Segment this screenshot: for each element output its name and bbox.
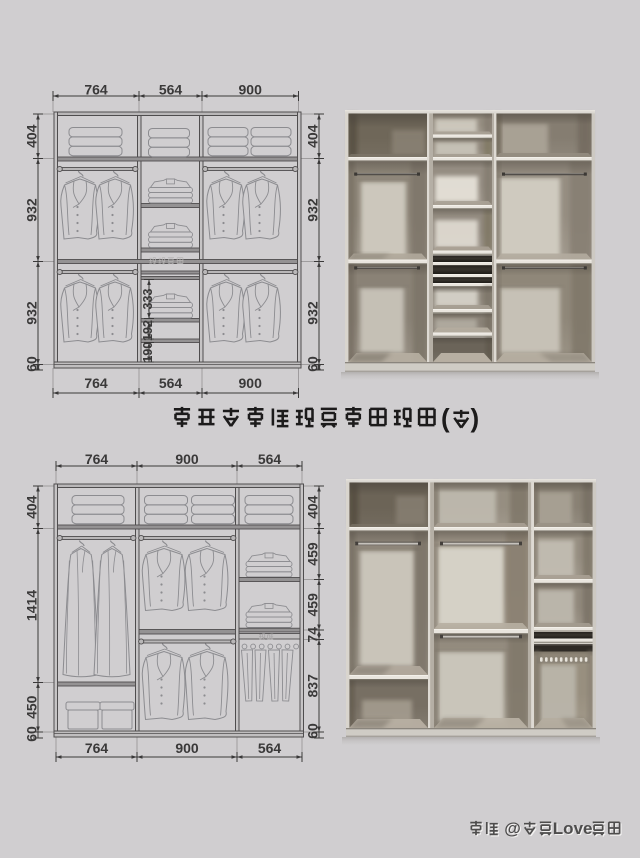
svg-text:60: 60: [305, 723, 321, 739]
svg-text:404: 404: [305, 124, 321, 148]
svg-text:564: 564: [159, 82, 183, 98]
svg-text:450: 450: [24, 695, 40, 719]
svg-text:932: 932: [24, 301, 40, 325]
svg-text:900: 900: [239, 82, 263, 98]
svg-text:564: 564: [159, 375, 183, 391]
svg-text:74: 74: [305, 627, 321, 643]
svg-text:404: 404: [305, 495, 321, 519]
svg-text:404: 404: [24, 124, 40, 148]
svg-text:(: (: [441, 403, 450, 433]
svg-text:900: 900: [239, 375, 263, 391]
svg-text:932: 932: [24, 198, 40, 222]
svg-text:764: 764: [85, 740, 109, 756]
svg-text:): ): [471, 403, 480, 433]
svg-text:404: 404: [24, 495, 40, 519]
svg-text:764: 764: [85, 451, 109, 467]
svg-text:900: 900: [175, 451, 199, 467]
svg-text:333: 333: [141, 289, 155, 310]
svg-text:@: @: [504, 819, 521, 838]
svg-text:60: 60: [24, 726, 40, 742]
svg-text:190: 190: [141, 342, 155, 363]
svg-text:1414: 1414: [24, 590, 40, 621]
svg-text:459: 459: [305, 593, 321, 617]
svg-text:932: 932: [305, 301, 321, 325]
svg-text:192: 192: [141, 320, 155, 341]
svg-text:Love: Love: [553, 819, 593, 838]
svg-text:900: 900: [175, 740, 199, 756]
svg-text:764: 764: [84, 375, 108, 391]
svg-text:932: 932: [305, 198, 321, 222]
svg-text:564: 564: [258, 451, 282, 467]
svg-text:564: 564: [258, 740, 282, 756]
svg-text:764: 764: [84, 82, 108, 98]
svg-text:837: 837: [305, 674, 321, 698]
svg-text:459: 459: [305, 542, 321, 566]
